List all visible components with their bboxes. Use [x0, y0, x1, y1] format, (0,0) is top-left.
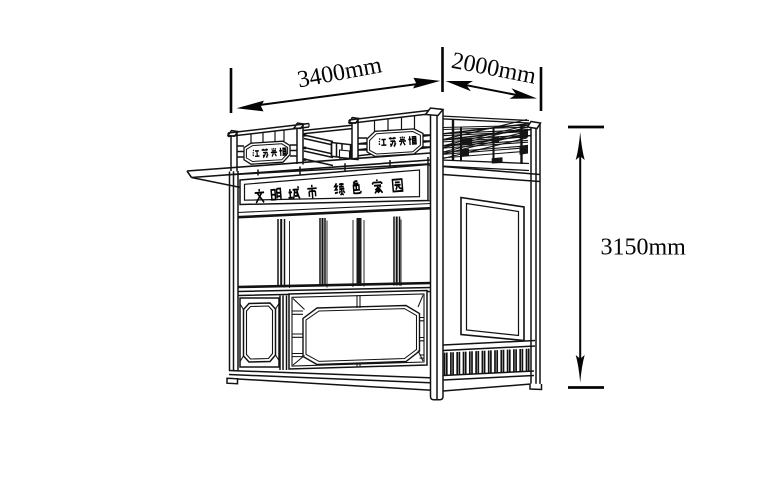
svg-text:3150mm: 3150mm: [601, 235, 687, 261]
svg-text:3400mm: 3400mm: [295, 52, 384, 93]
